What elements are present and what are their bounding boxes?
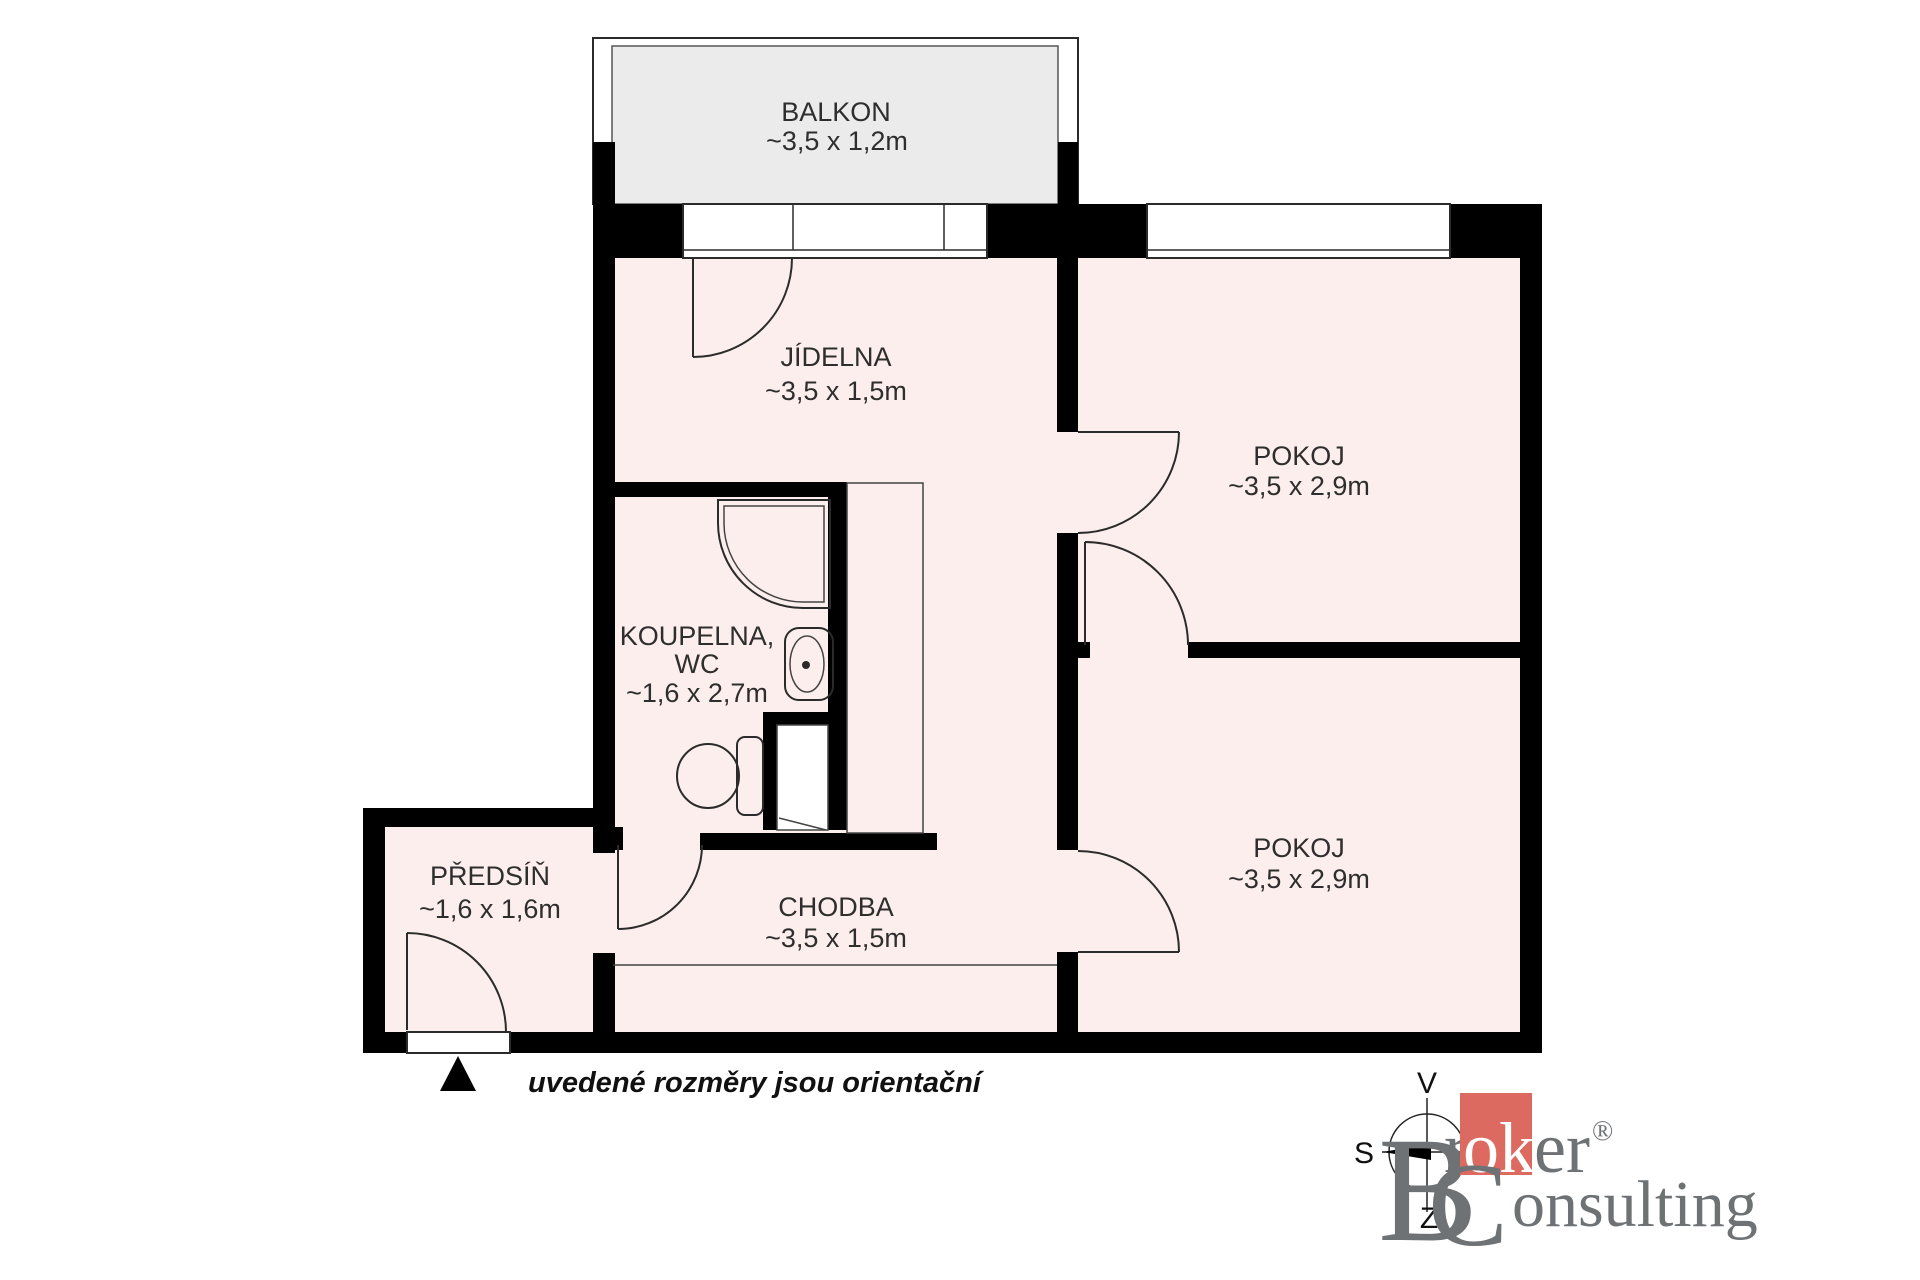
entrance-marker-icon (440, 1056, 476, 1091)
right-wall (1520, 204, 1542, 1053)
balcony-right-pier (1058, 142, 1078, 204)
predsin-floor (385, 827, 615, 1032)
floorplan-svg: BALKON ~3,5 x 1,2m JÍDELNA ~3,5 x 1,5m P… (0, 0, 1920, 1280)
room-label-pokoj-bottom: POKOJ (1253, 833, 1345, 863)
room-dims-predsin: ~1,6 x 1,6m (419, 894, 561, 924)
room-label-koupelna-line2: WC (675, 649, 720, 679)
logo-letter-c: C (1428, 1138, 1508, 1271)
disclaimer-text: uvedené rozměry jsou orientační (528, 1067, 985, 1099)
compass-north-label: S (1354, 1137, 1374, 1170)
room-label-chodba: CHODBA (778, 892, 894, 922)
room-label-predsin: PŘEDSÍŇ (430, 860, 550, 891)
compass-east-label: V (1417, 1067, 1437, 1100)
room-dims-chodba: ~3,5 x 1,5m (765, 923, 907, 953)
room-label-koupelna: KOUPELNA, (620, 621, 775, 651)
logo-onsulting: onsulting (1512, 1168, 1758, 1241)
room-label-balkon: BALKON (781, 97, 891, 127)
broker-consulting-logo: B r ok er ® C onsulting (1378, 1093, 1758, 1273)
left-wall (593, 142, 615, 827)
logo-registered-icon: ® (1592, 1116, 1613, 1147)
bottom-wall (363, 1032, 1542, 1053)
utility-shaft (777, 725, 828, 830)
room-dims-pokoj-bottom: ~3,5 x 2,9m (1228, 864, 1370, 894)
room-label-pokoj-top: POKOJ (1253, 441, 1345, 471)
room-dims-jidelna: ~3,5 x 1,5m (765, 376, 907, 406)
room-dims-koupelna: ~1,6 x 2,7m (626, 678, 768, 708)
room-dims-pokoj-top: ~3,5 x 2,9m (1228, 471, 1370, 501)
room-label-jidelna: JÍDELNA (780, 342, 891, 372)
room-dims-balkon: ~3,5 x 1,2m (766, 126, 908, 156)
floorplan-page: BALKON ~3,5 x 1,2m JÍDELNA ~3,5 x 1,5m P… (0, 0, 1920, 1280)
